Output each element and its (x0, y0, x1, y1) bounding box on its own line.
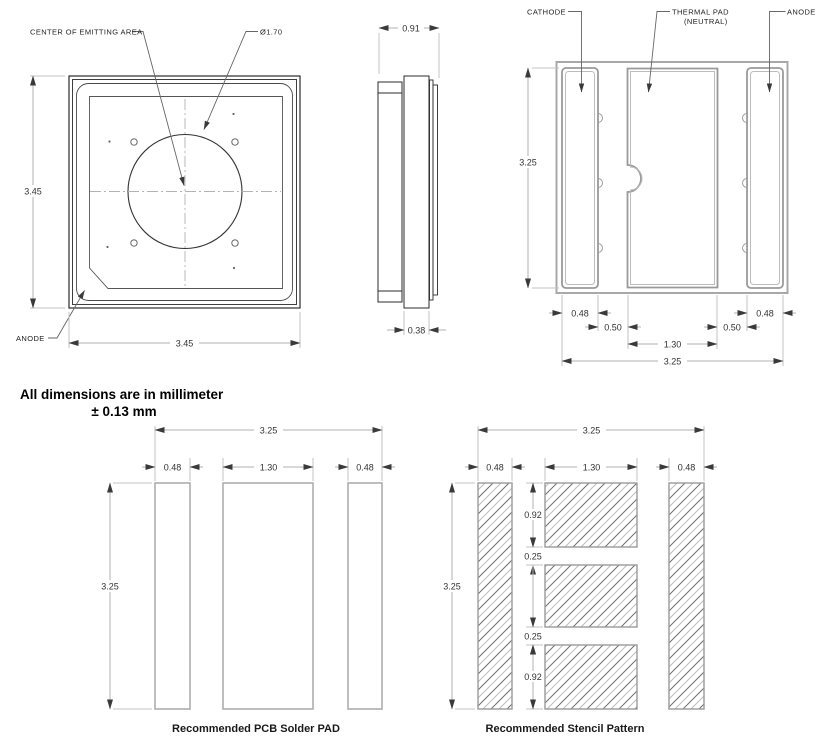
pcb-dim-left-pad-value: 0.48 (164, 463, 182, 473)
diameter-leader-line (204, 32, 258, 130)
stencil-caption: Recommended Stencil Pattern (486, 723, 645, 735)
diameter-label: Ø1.70 (260, 28, 282, 37)
dim-anode-width-value: 0.48 (756, 309, 774, 319)
drawing-canvas: CENTER OF EMITTING AREA Ø1.70 ANODE 3.45… (0, 0, 836, 742)
dim-thermal-width-value: 1.30 (664, 340, 682, 350)
standoff-dimension: 0.38 (387, 311, 446, 336)
front-view: CENTER OF EMITTING AREA Ø1.70 ANODE 3.45… (16, 28, 300, 350)
stencil-center-aperture-bottom (545, 645, 637, 709)
cathode-pad-inner (566, 72, 595, 285)
pcb-dim-center-pad-value: 1.30 (260, 463, 278, 473)
package-outline-bottom (557, 62, 788, 293)
dimension-note: All dimensions are in millimeter ± 0.13 … (20, 387, 224, 419)
stencil-dim-width-value: 3.25 (583, 426, 601, 436)
substrate-layer-lines (378, 93, 402, 291)
stencil-pattern-view: 3.25 0.48 1.30 0.48 3.25 0.92 0.25 (441, 424, 717, 735)
height-dimension: 3.45 (22, 76, 65, 308)
pcb-right-pad (348, 483, 382, 709)
stencil-segment-dimensions: 0.92 0.25 0.25 0.92 (522, 483, 544, 709)
thermal-pad (628, 69, 718, 288)
package-outline (69, 76, 300, 308)
cathode-leader-line (568, 12, 582, 93)
stencil-dim-gap-top-value: 0.25 (524, 552, 542, 562)
anode-leader-line (48, 291, 85, 339)
side-view: 0.91 0.38 (378, 22, 446, 336)
note-line2: ± 0.13 mm (91, 404, 156, 419)
stencil-right-aperture (669, 483, 704, 709)
mechanical-drawing-page: CENTER OF EMITTING AREA Ø1.70 ANODE 3.45… (0, 0, 836, 742)
package-inner-outline (73, 80, 297, 305)
anode-label-bottom: ANODE (787, 8, 816, 17)
stencil-center-aperture-top (545, 483, 637, 547)
dim-thickness-value: 0.91 (402, 24, 420, 34)
cathode-label: CATHODE (527, 8, 566, 17)
lens-body (404, 76, 429, 308)
pcb-solder-pad-view: 3.25 0.48 1.30 0.48 3.25 Recommended PCB… (99, 424, 395, 735)
pcb-caption: Recommended PCB Solder PAD (172, 723, 340, 735)
thermal-pad-label-line2: (NEUTRAL) (684, 17, 728, 26)
note-line1: All dimensions are in millimeter (20, 387, 224, 402)
center-of-emitting-area-label: CENTER OF EMITTING AREA (30, 28, 143, 37)
cathode-pad (562, 68, 598, 288)
bottom-height-dimension: 3.25 (517, 68, 559, 288)
thermal-pad-inner (631, 72, 715, 285)
dim-pad-height-value: 3.25 (519, 158, 537, 168)
anode-pad (747, 68, 783, 288)
dim-standoff-value: 0.38 (408, 326, 426, 336)
stencil-dim-center-pad-value: 1.30 (583, 463, 601, 473)
stencil-dim-height-value: 3.25 (443, 582, 461, 592)
pcb-left-pad (155, 483, 190, 709)
side-thickness-dimension: 0.91 (379, 22, 439, 78)
width-dimension: 3.45 (69, 312, 300, 349)
pad-strip-inner (433, 85, 438, 295)
dim-cathode-width-value: 0.48 (571, 309, 589, 319)
anode-label: ANODE (16, 334, 45, 343)
stencil-dim-segment-bottom-value: 0.92 (524, 672, 542, 682)
center-leader-line (132, 32, 184, 186)
pcb-dim-right-pad-value: 0.48 (356, 463, 374, 473)
cavity-outline (77, 84, 293, 301)
dim-gap-left-value: 0.50 (604, 323, 622, 333)
stencil-center-aperture-middle (545, 565, 637, 627)
pad-strip-outer (430, 80, 434, 300)
dim-width-value: 3.45 (176, 339, 194, 349)
stencil-dim-segment-top-value: 0.92 (524, 510, 542, 520)
stencil-dim-left-pad-value: 0.48 (486, 463, 504, 473)
thermal-leader-line (649, 12, 671, 93)
dim-height-value: 3.45 (24, 187, 42, 197)
pcb-dim-height-value: 3.25 (101, 582, 119, 592)
stencil-dim-gap-bottom-value: 0.25 (524, 632, 542, 642)
stencil-left-aperture (478, 483, 512, 709)
dim-gap-right-value: 0.50 (723, 323, 741, 333)
thermal-pad-label: THERMAL PAD (672, 8, 729, 17)
bottom-width-dimensions: 0.48 0.48 0.50 0.50 1.30 3.25 (549, 295, 796, 367)
emitting-surface-outline (90, 97, 283, 289)
alignment-marks (131, 139, 238, 246)
anode-pad-inner (751, 72, 780, 285)
pcb-dim-width-value: 3.25 (260, 426, 278, 436)
substrate-body (378, 82, 402, 302)
pcb-center-pad (223, 483, 313, 709)
dim-pad-span-value: 3.25 (664, 357, 682, 367)
bottom-view: CATHODE THERMAL PAD (NEUTRAL) ANODE 3.25… (517, 8, 816, 368)
stencil-dim-right-pad-value: 0.48 (678, 463, 696, 473)
